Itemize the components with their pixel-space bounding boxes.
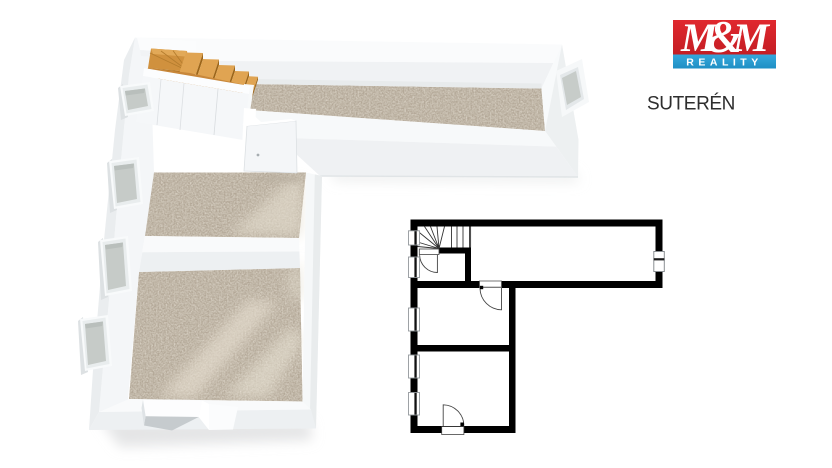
svg-text:REALITY: REALITY xyxy=(686,57,762,69)
svg-text:&: & xyxy=(707,12,742,62)
svg-text:SUTERÉN: SUTERÉN xyxy=(647,94,735,115)
